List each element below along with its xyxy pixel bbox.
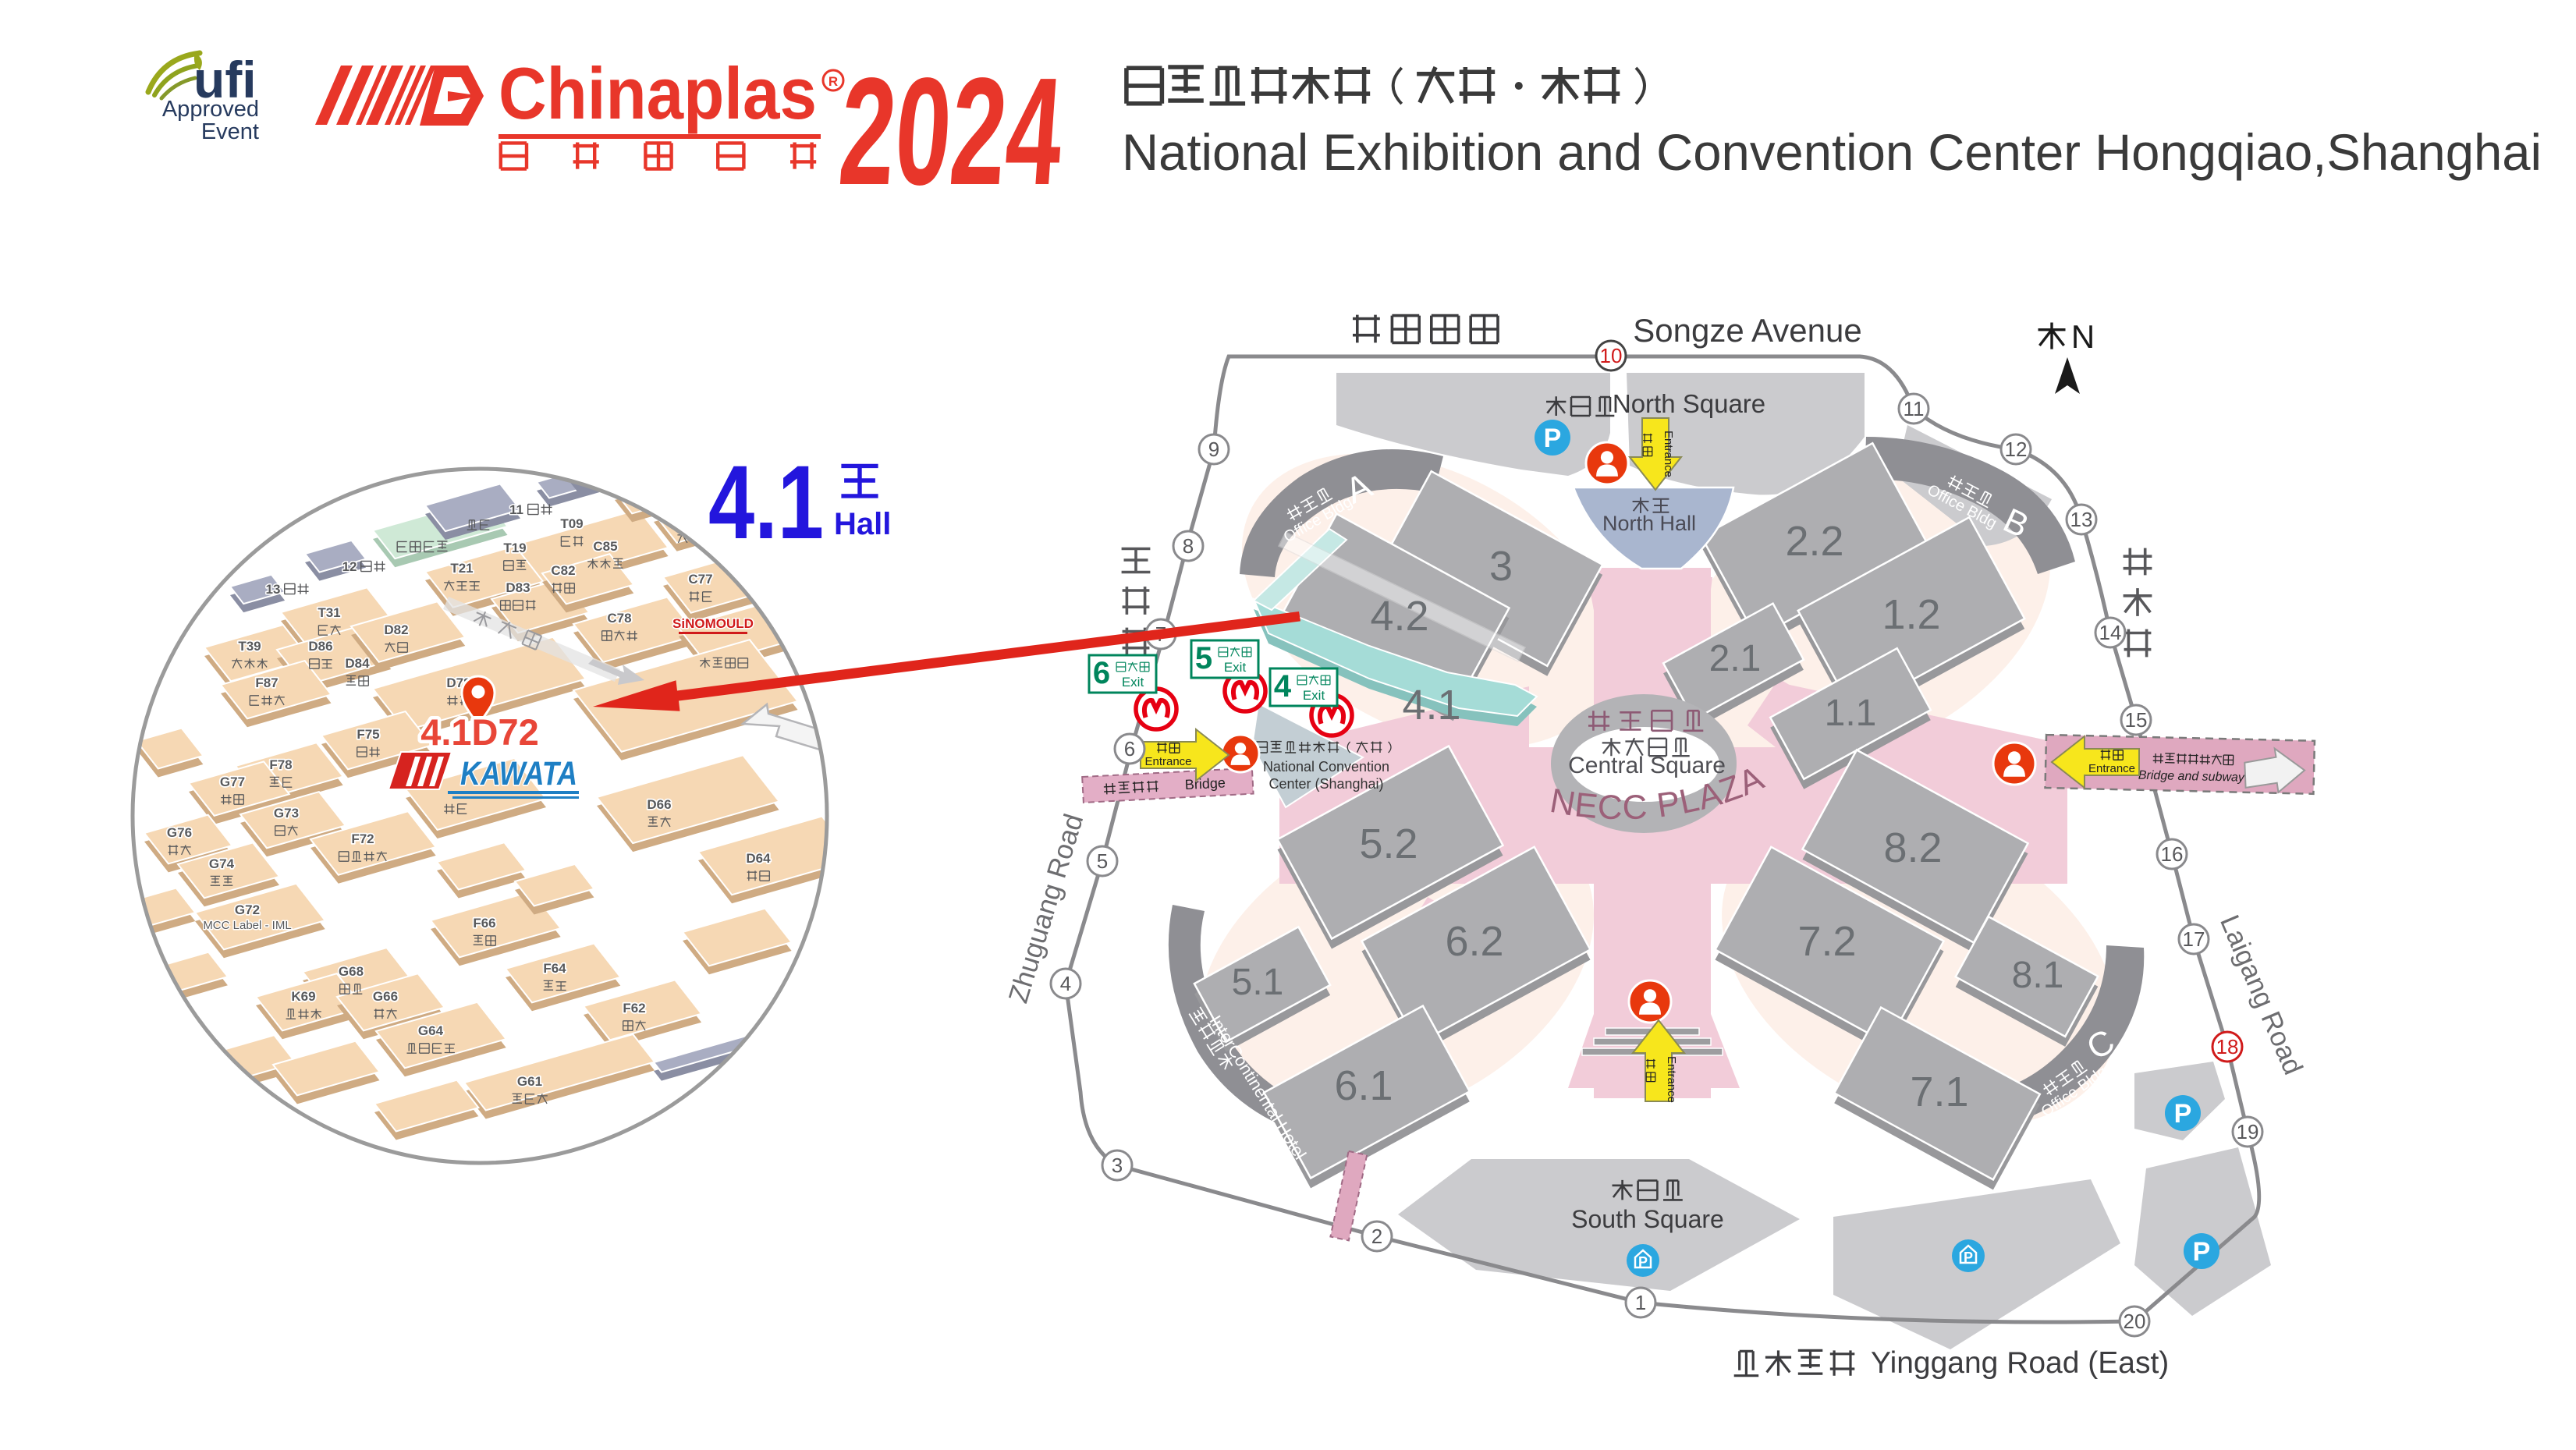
svg-text:Exit: Exit [1122,675,1144,690]
svg-text:7.1: 7.1 [1910,1069,1968,1115]
svg-text:G64: G64 [418,1023,444,1038]
svg-text:14: 14 [2099,621,2122,644]
svg-text:Entrance: Entrance [1662,431,1675,477]
svg-text:G73: G73 [274,806,299,821]
svg-text:D84: D84 [345,656,370,671]
svg-text:6: 6 [1124,737,1135,760]
svg-text:Exit: Exit [1224,660,1247,675]
svg-text:3: 3 [1112,1154,1123,1177]
svg-text:19: 19 [2237,1120,2259,1143]
svg-text:1: 1 [1635,1291,1646,1314]
svg-text:C78: C78 [607,611,631,626]
svg-text:Center (Shanghai): Center (Shanghai) [1268,776,1383,792]
svg-text:Entrance: Entrance [2088,762,2135,775]
svg-text:Entrance: Entrance [1144,755,1191,768]
svg-text:F62: F62 [623,1001,645,1016]
svg-text:G77: G77 [220,775,245,789]
svg-text:Yinggang Road (East): Yinggang Road (East) [1871,1346,2169,1380]
svg-text:9: 9 [1208,438,1219,461]
svg-text:MCC Label - IML: MCC Label - IML [203,919,291,932]
svg-text:4.2: 4.2 [1370,593,1428,640]
svg-text:Songze Avenue: Songze Avenue [1633,312,1862,349]
svg-text:8: 8 [1183,534,1194,558]
svg-text:T39: T39 [238,639,261,654]
svg-text:National Convention: National Convention [1263,759,1389,775]
svg-text:F64: F64 [543,961,566,976]
svg-text:F72: F72 [351,831,374,846]
svg-text:C82: C82 [551,563,575,578]
svg-text:Central Square: Central Square [1568,753,1726,778]
svg-text:G74: G74 [209,856,235,871]
svg-text:4: 4 [1274,669,1292,704]
svg-text:10: 10 [1600,344,1623,367]
svg-text:C77: C77 [688,572,712,587]
svg-text:18: 18 [2216,1035,2239,1058]
svg-text:Bridge and subway: Bridge and subway [2138,769,2245,785]
svg-text:5: 5 [1097,849,1108,873]
svg-text:P: P [1544,424,1562,453]
svg-text:P: P [2193,1237,2211,1267]
svg-text:5.1: 5.1 [1232,962,1284,1003]
svg-text:2.1: 2.1 [1709,638,1762,679]
svg-text:8.2: 8.2 [1883,824,1942,871]
svg-text:T31: T31 [318,605,340,620]
svg-text:F87: F87 [255,675,278,690]
svg-text:20: 20 [2124,1310,2146,1333]
svg-text:D83: D83 [506,580,530,595]
svg-text:6.1: 6.1 [1334,1062,1393,1109]
svg-text:5: 5 [1195,641,1212,675]
svg-text:Hall: Hall [834,507,891,541]
svg-text:D66: D66 [647,797,671,812]
svg-text:N: N [2071,318,2095,355]
svg-text:11: 11 [509,502,523,517]
svg-text:G61: G61 [517,1074,542,1089]
svg-text:6.2: 6.2 [1445,918,1503,965]
svg-text:P: P [2174,1099,2192,1129]
svg-text:2024: 2024 [835,45,1068,217]
svg-text:Chinaplas: Chinaplas [499,52,817,134]
svg-text:D86: D86 [308,639,332,654]
svg-text:13: 13 [2070,508,2093,531]
svg-text:North Square: North Square [1613,389,1765,418]
svg-text:4.1: 4.1 [708,445,824,561]
svg-text:1.1: 1.1 [1825,693,1877,734]
svg-text:11: 11 [1904,397,1925,420]
svg-text:G72: G72 [235,902,260,917]
svg-text:F78: F78 [269,757,292,772]
svg-text:Approved: Approved [162,97,259,122]
svg-text:K69: K69 [291,989,315,1004]
svg-text:T19: T19 [503,541,526,555]
svg-text:1.2: 1.2 [1882,591,1940,638]
svg-text:D64: D64 [746,851,771,866]
svg-text:D82: D82 [384,622,408,637]
svg-text:16: 16 [2161,842,2184,866]
svg-text:North Hall: North Hall [1602,512,1696,535]
svg-text:Event: Event [201,119,259,144]
svg-text:F75: F75 [357,727,379,742]
svg-text:T09: T09 [560,516,583,531]
svg-text:R: R [829,74,838,89]
svg-text:F66: F66 [473,916,495,931]
svg-text:G68: G68 [339,964,364,979]
svg-text:13: 13 [266,582,281,597]
svg-text:SiNOMOULD: SiNOMOULD [672,616,754,631]
svg-text:National Exhibition and Conven: National Exhibition and Convention Cente… [1122,123,2542,181]
svg-text:2.2: 2.2 [1785,518,1843,565]
svg-text:2: 2 [1371,1225,1382,1248]
svg-text:4: 4 [1060,972,1071,995]
svg-text:KAWATA: KAWATA [460,755,577,792]
svg-text:T21: T21 [450,561,473,576]
svg-text:4.1D72: 4.1D72 [420,711,539,753]
svg-text:17: 17 [2183,927,2205,951]
svg-text:7.2: 7.2 [1797,918,1856,965]
svg-text:12: 12 [2005,438,2028,461]
svg-text:P: P [1964,1250,1973,1265]
svg-text:Bridge: Bridge [1184,775,1226,792]
svg-text:15: 15 [2125,708,2148,732]
svg-text:P: P [1638,1254,1648,1270]
svg-text:5.2: 5.2 [1359,821,1418,867]
svg-text:8.1: 8.1 [2012,955,2064,996]
svg-text:6: 6 [1093,656,1110,690]
svg-text:G66: G66 [373,989,398,1004]
svg-text:3: 3 [1489,543,1513,590]
svg-text:12: 12 [342,559,357,574]
svg-text:Exit: Exit [1303,688,1325,703]
svg-text:Entrance: Entrance [1665,1056,1678,1103]
svg-text:South Square: South Square [1571,1205,1724,1233]
svg-text:4.1: 4.1 [1402,682,1460,729]
svg-text:G76: G76 [167,825,192,840]
svg-text:C85: C85 [593,539,617,554]
